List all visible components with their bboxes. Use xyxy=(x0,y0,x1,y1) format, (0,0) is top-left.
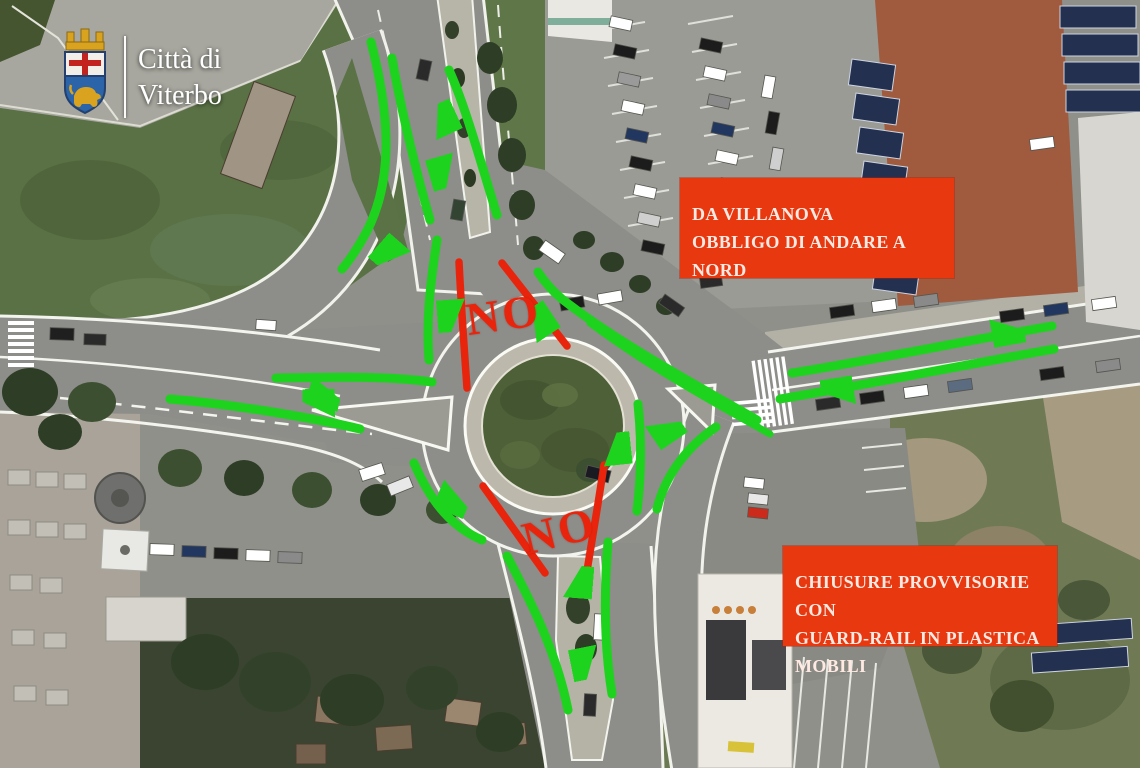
watermark-divider xyxy=(124,36,126,118)
callout-line: GUARD-RAIL IN PLASTICA xyxy=(795,624,1047,652)
watermark-city: Città di xyxy=(138,42,222,78)
callout-line: MOBILI xyxy=(795,652,1047,680)
city-watermark: Città di Viterbo xyxy=(58,24,288,124)
callout-chiusure: CHIUSURE PROVVISORIE CON GUARD-RAIL IN P… xyxy=(783,546,1057,646)
arrow-exit-west xyxy=(276,377,432,382)
callout-line: DA VILLANOVA xyxy=(692,200,944,228)
arrow-circulate-east-up xyxy=(637,404,641,511)
watermark-name: Viterbo xyxy=(138,78,222,114)
callout-villanova: DA VILLANOVA OBBLIGO DI ANDARE A NORD xyxy=(680,178,954,278)
annotated-satellite-map: Città di Viterbo DA VILLANOVA OBBLIGO DI… xyxy=(0,0,1140,768)
callout-line: CHIUSURE PROVVISORIE CON xyxy=(795,568,1047,624)
viterbo-coat-of-arms-icon xyxy=(58,24,112,116)
closure-label-top: NO xyxy=(463,283,545,346)
callout-line: OBBLIGO DI ANDARE A NORD xyxy=(692,228,944,284)
